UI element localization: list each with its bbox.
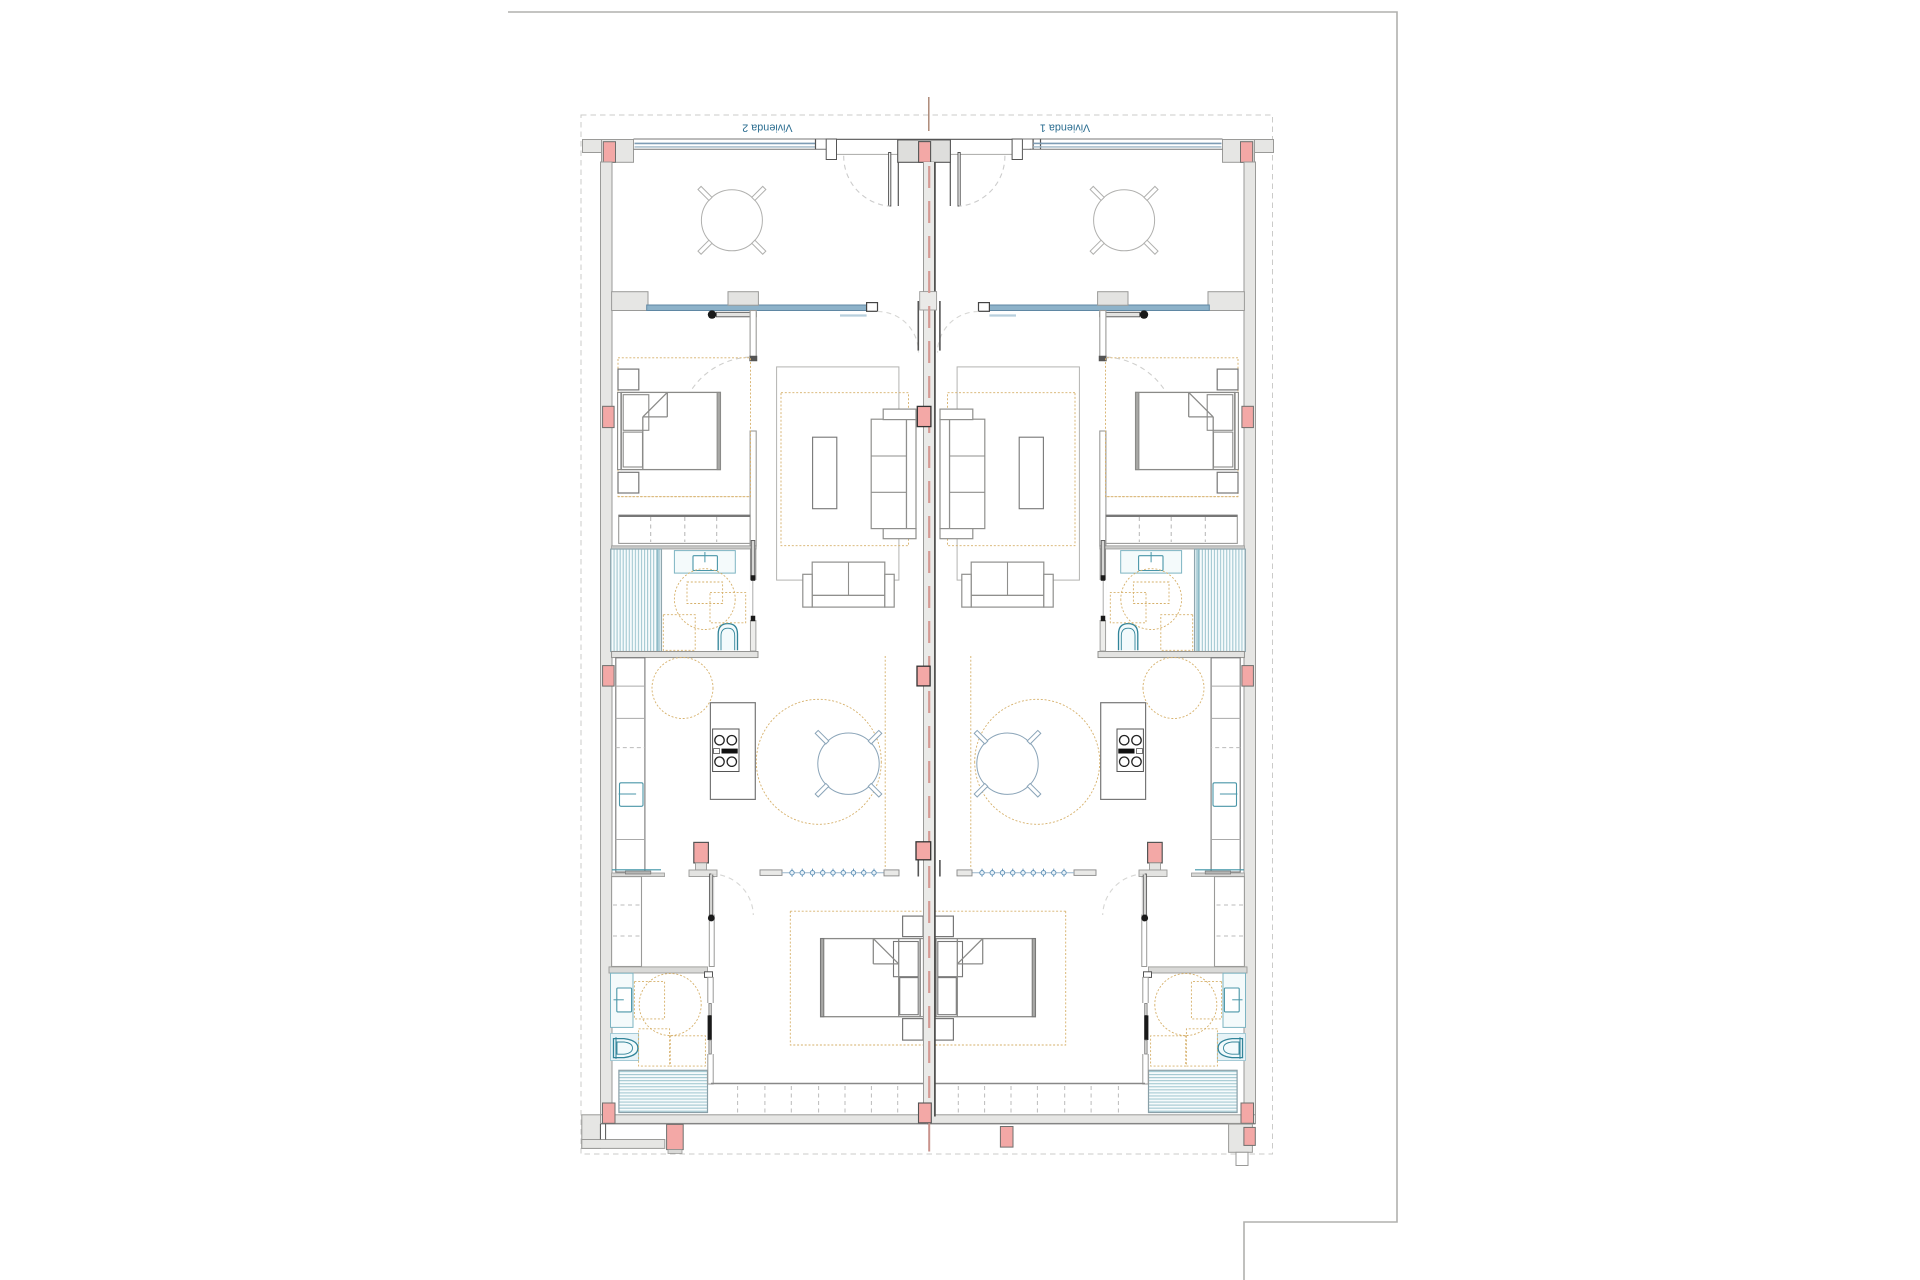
svg-text:Vivienda 1: Vivienda 1 [1040,122,1090,134]
svg-text:Vivienda 2: Vivienda 2 [742,122,792,134]
